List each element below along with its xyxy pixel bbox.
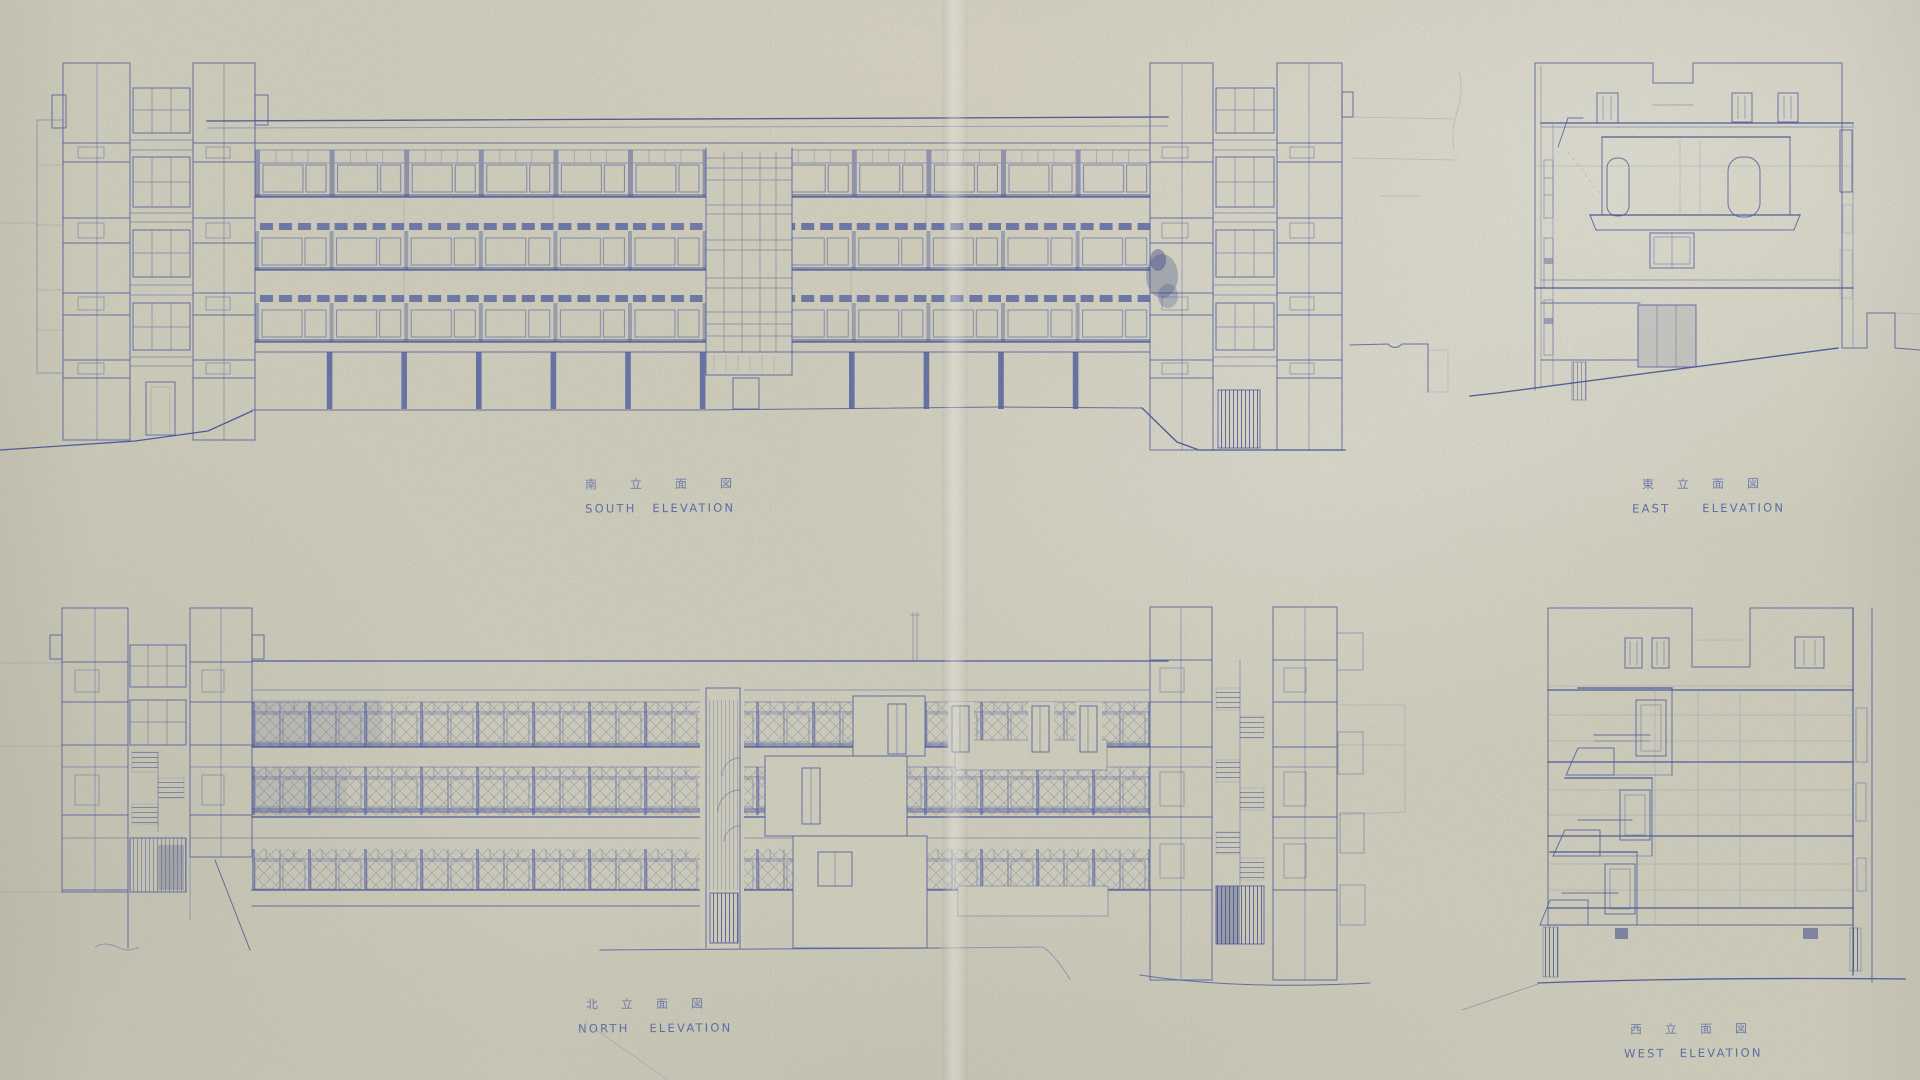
caption-south-jp: 南立面図 [585,474,765,492]
west-floor-lines [1548,686,1853,925]
west-wall-slots [1856,708,1867,891]
north-right-tower-stair [1216,660,1264,944]
north-right-tower [1140,607,1405,985]
ground-squiggle [95,944,139,950]
west-elevation-drawing [1462,608,1905,1010]
paper-crease-mark [1453,72,1461,150]
east-top-windows [1597,93,1798,123]
south-left-tower-windows [130,88,193,366]
west-outline [1548,608,1872,982]
caption-north-en: NORTH ELEVATION [578,1020,732,1035]
south-right-tower-door [1218,390,1260,448]
elevation-drawings [0,0,1920,1080]
west-balcony-3 [1540,852,1637,925]
caption-west-jp: 西立面図 [1630,1020,1770,1038]
east-projection [1590,130,1852,298]
north-right-tower-attachments [1337,633,1365,925]
mast [910,612,920,661]
north-stair-tower [700,686,744,948]
caption-east-jp: 東立面図 [1642,475,1785,493]
caption-east-en: EAST ELEVATION [1632,501,1785,516]
west-ground-line [1462,979,1905,1011]
south-left-tower-door [146,382,175,435]
west-top-windows [1625,637,1824,668]
south-elevation-drawing [0,63,1455,450]
south-right-tower [1146,63,1455,450]
ink-smudge [1146,249,1178,308]
caption-north: 北立面図 NORTH ELEVATION [586,994,733,1035]
east-entry-door [1638,305,1696,367]
caption-west-en: WEST ELEVATION [1624,1046,1770,1061]
south-left-tower [0,63,268,440]
east-elevation-drawing [1453,63,1920,400]
south-right-tower-windows [1213,88,1277,366]
west-base-vents [1543,927,1861,977]
caption-west: 西立面図 WEST ELEVATION [1630,1020,1770,1061]
blueprint-sheet: 南立面図 SOUTH ELEVATION 東立面図 EAST ELEVATION… [0,0,1920,1080]
caption-south: 南立面図 SOUTH ELEVATION [585,474,765,515]
south-stair-block [706,148,792,409]
caption-south-en: SOUTH ELEVATION [585,500,765,515]
south-facade-bands [207,117,1168,352]
east-wall-slots [1544,160,1553,355]
caption-east: 東立面図 EAST ELEVATION [1642,475,1785,516]
east-square-window [1650,233,1694,268]
north-left-tower [0,608,264,950]
north-left-tower-stair [130,645,186,892]
south-pilotis-columns [327,352,1079,409]
caption-north-jp: 北立面図 [586,994,732,1012]
